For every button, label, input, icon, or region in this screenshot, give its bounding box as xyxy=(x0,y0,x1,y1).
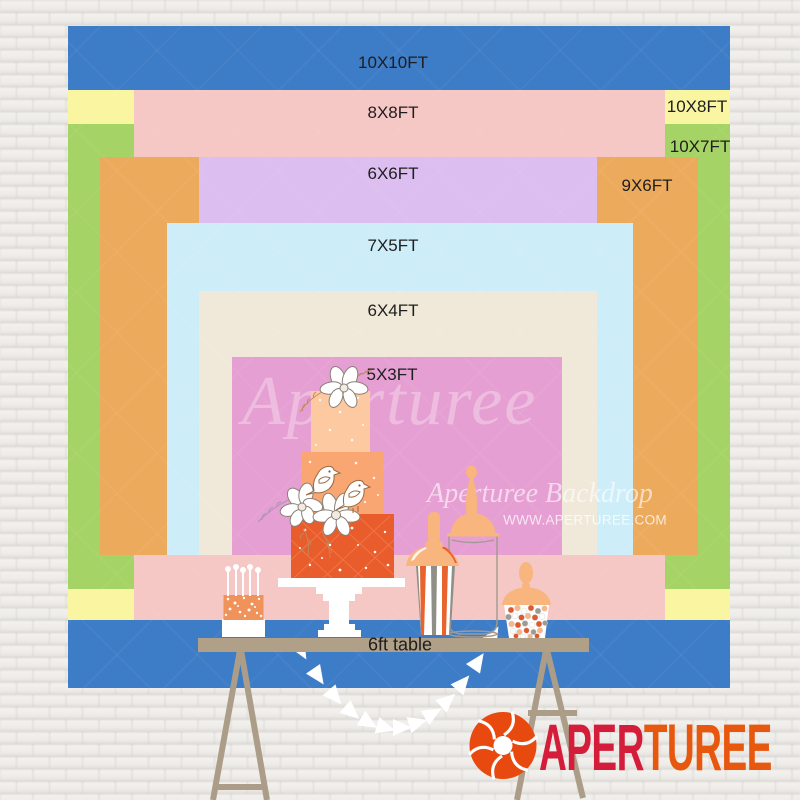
svg-text:APERTUREE: APERTUREE xyxy=(539,711,772,784)
